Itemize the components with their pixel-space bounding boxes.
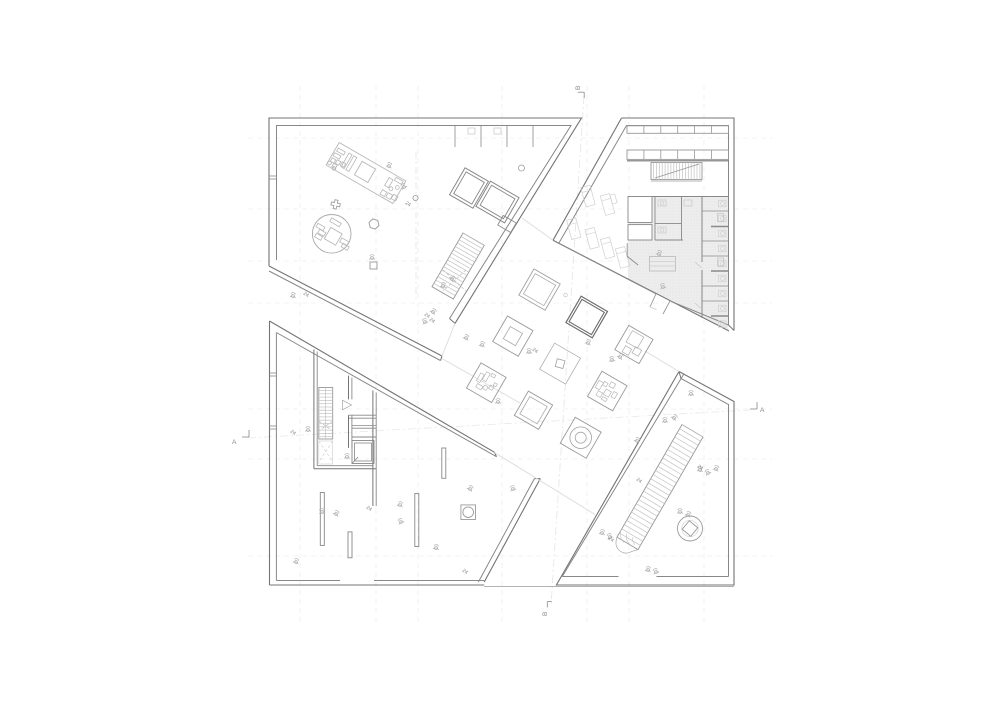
- svg-text:B: B: [575, 86, 582, 90]
- svg-text:B: B: [542, 612, 549, 616]
- svg-text:A: A: [232, 439, 237, 446]
- svg-text:A: A: [760, 407, 765, 414]
